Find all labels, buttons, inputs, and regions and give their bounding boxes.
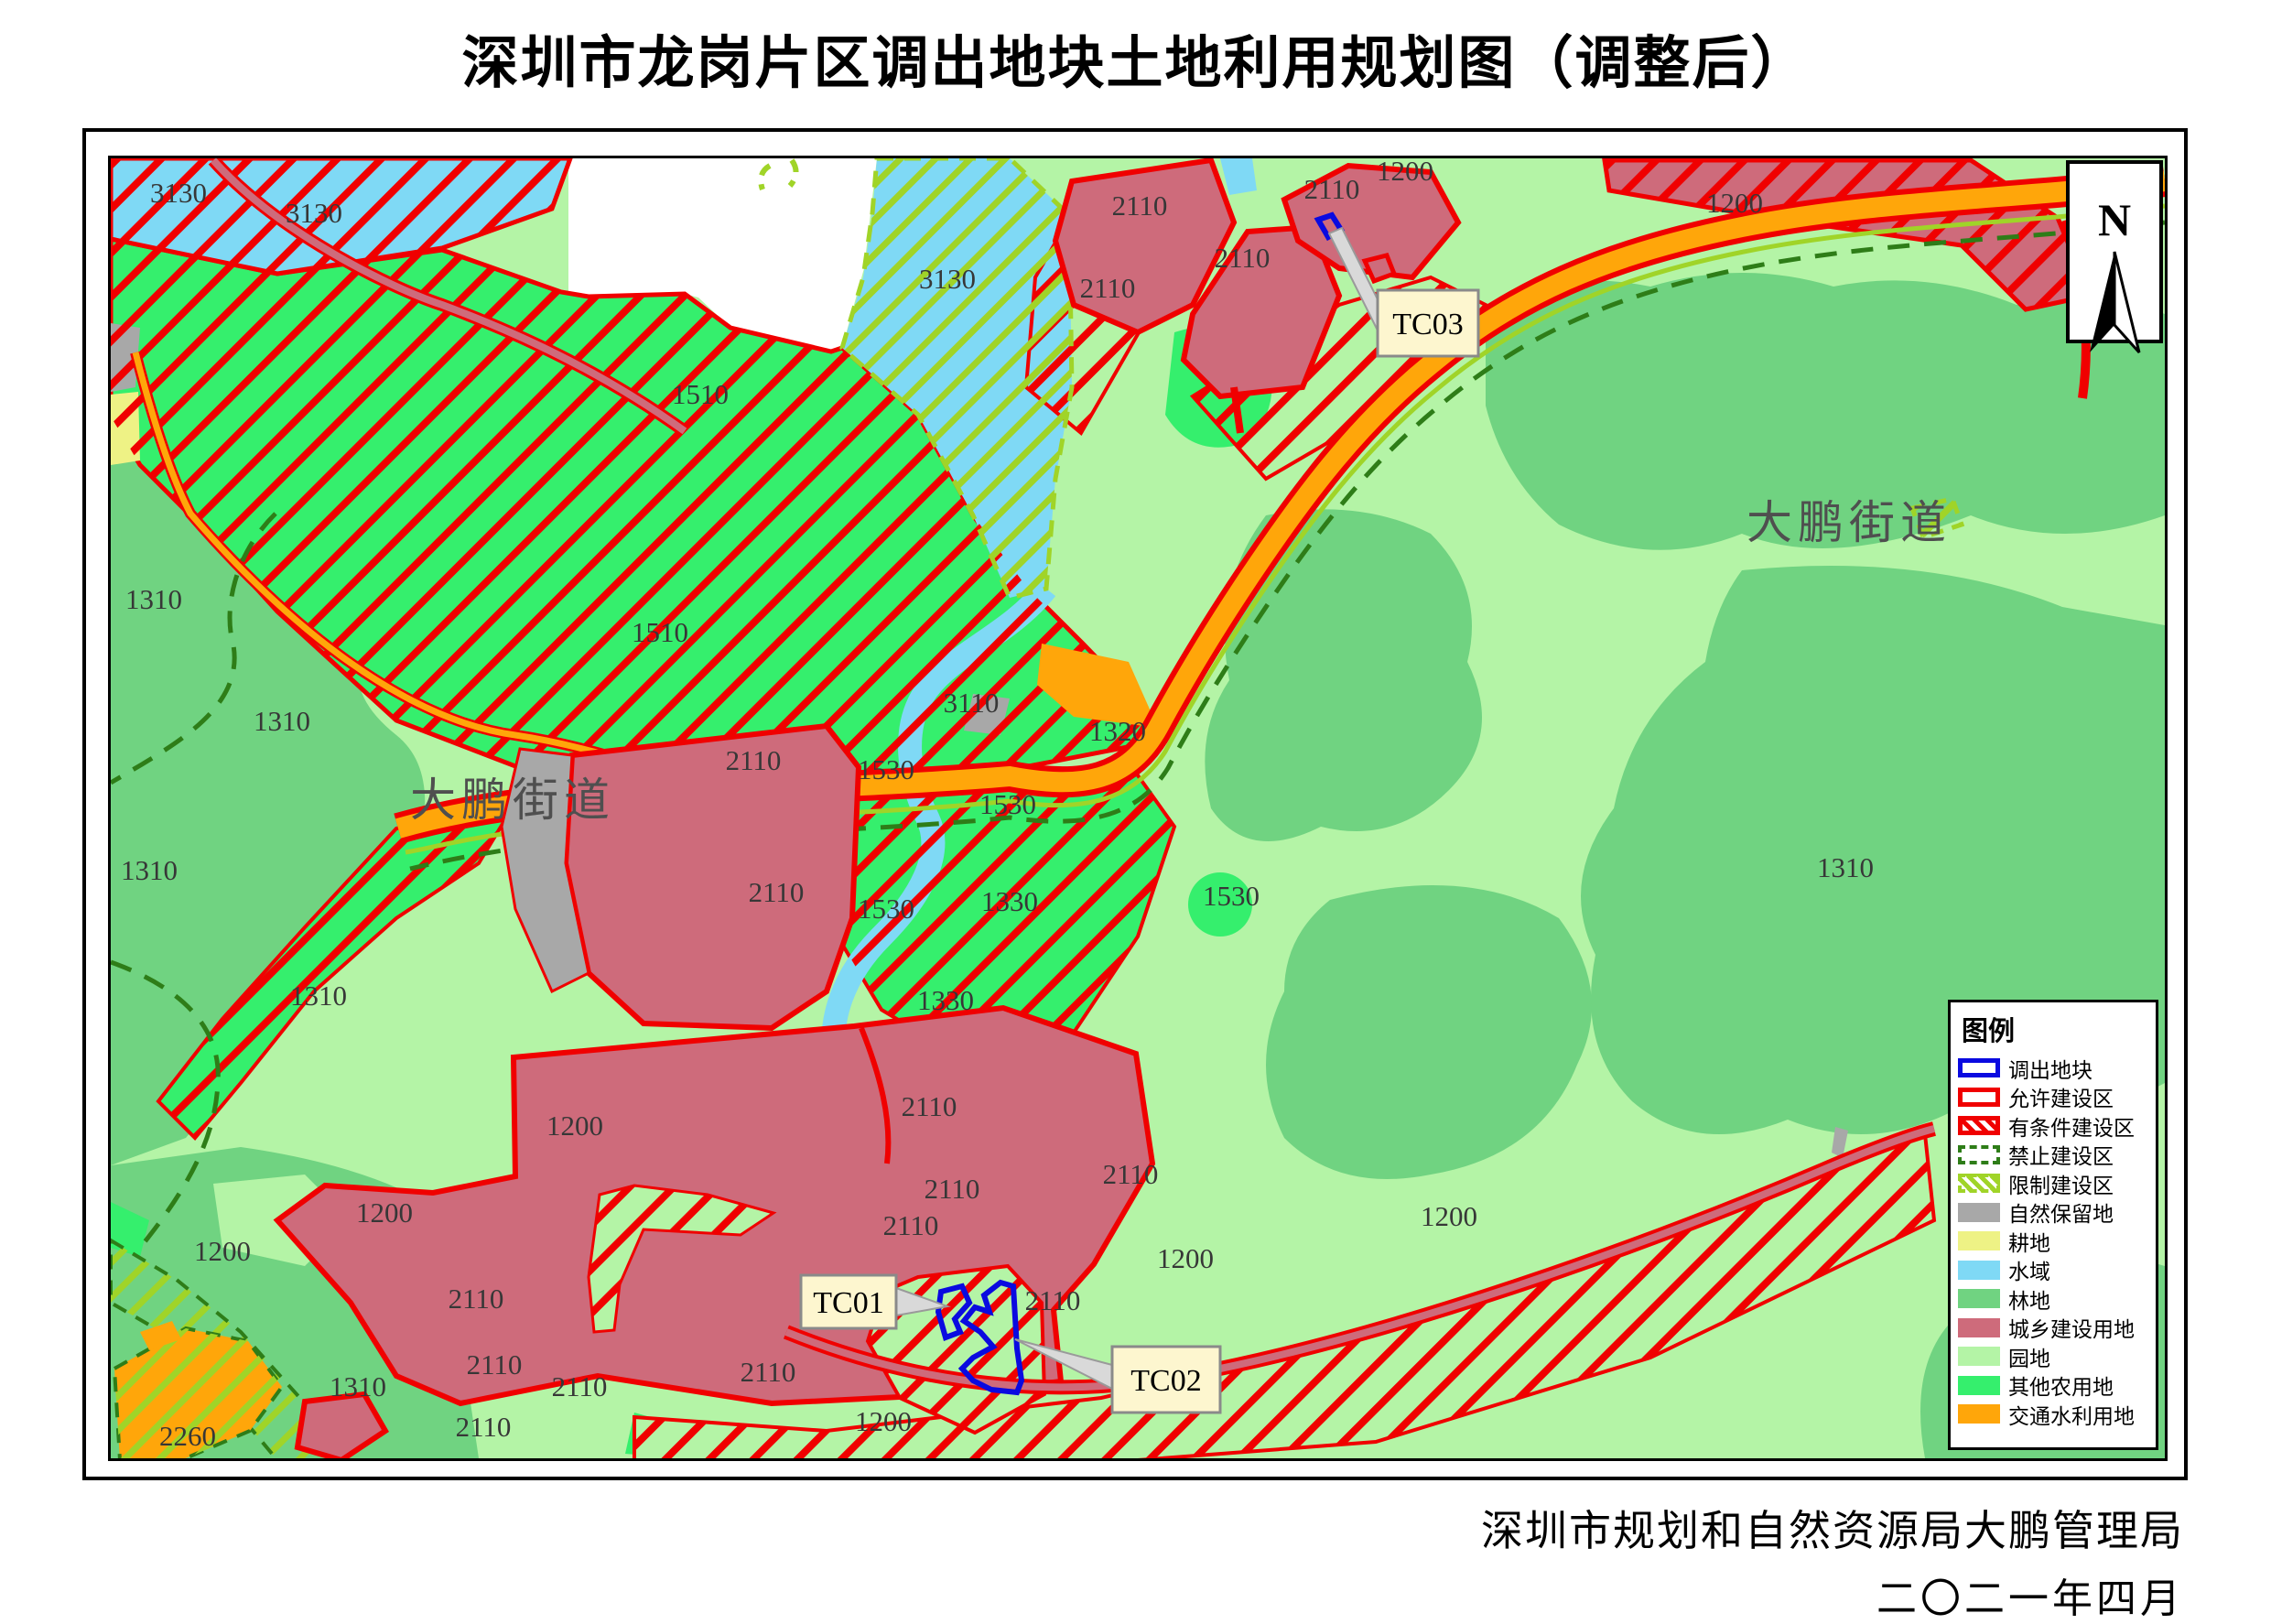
legend-item: 园地 <box>1958 1342 2148 1371</box>
street-label: 大鹏街道 <box>1747 497 1952 548</box>
map-label: 3130 <box>919 263 976 295</box>
map-label: 3110 <box>944 687 1000 719</box>
map-label: 1310 <box>290 980 347 1012</box>
map-label: 1200 <box>1157 1242 1214 1274</box>
map-label: 2110 <box>1103 1158 1159 1190</box>
map-label: 2110 <box>467 1348 523 1380</box>
legend-item: 水域 <box>1958 1256 2148 1285</box>
map-label: 2110 <box>456 1411 512 1443</box>
map-label: 1530 <box>1203 880 1260 912</box>
map-label: 1200 <box>356 1196 413 1229</box>
map-label: 1310 <box>254 705 310 737</box>
legend-swatch <box>1958 1347 2000 1366</box>
map-label: 1310 <box>330 1370 386 1402</box>
legend-item-label: 耕地 <box>2008 1226 2050 1257</box>
legend-item-label: 调出地块 <box>2008 1053 2093 1084</box>
map-label: 3130 <box>286 197 342 229</box>
map-label: 1200 <box>1421 1200 1477 1232</box>
callout-label: TC02 <box>1130 1364 1201 1398</box>
legend-item-label: 禁止建设区 <box>2008 1139 2114 1170</box>
legend-swatch <box>1958 1231 2000 1250</box>
legend-swatch <box>1958 1404 2000 1424</box>
legend-item: 其他农用地 <box>1958 1371 2148 1401</box>
legend-item-label: 水域 <box>2008 1254 2050 1285</box>
map-label: 2110 <box>883 1209 939 1241</box>
legend-item-label: 交通水利用地 <box>2008 1399 2135 1430</box>
map-label: 1510 <box>672 378 729 410</box>
map-label: 1310 <box>1817 851 1874 883</box>
legend-swatch <box>1958 1203 2000 1222</box>
legend-item-label: 林地 <box>2008 1283 2050 1315</box>
map-label: 2110 <box>552 1370 608 1402</box>
map-label: 2110 <box>726 744 782 776</box>
map-label: 1530 <box>858 893 914 925</box>
map-label: 1200 <box>1706 187 1763 219</box>
legend-item-label: 自然保留地 <box>2008 1196 2114 1228</box>
map-label: 1530 <box>858 753 914 785</box>
map-label: 1310 <box>121 854 178 886</box>
north-arrow-box: N <box>2068 162 2161 352</box>
legend-swatch <box>1958 1376 2000 1395</box>
map-label: 2110 <box>449 1283 504 1315</box>
legend-item-label: 允许建设区 <box>2008 1081 2114 1112</box>
legend-item: 自然保留地 <box>1958 1198 2148 1228</box>
map-label: 1200 <box>855 1405 912 1437</box>
map-label: 2110 <box>1112 189 1168 222</box>
footer-date: 二〇二一年四月 <box>1481 1565 2184 1624</box>
legend-swatch <box>1958 1116 2000 1135</box>
page-title: 深圳市龙岗片区调出地块土地利用规划图（调整后） <box>0 16 2271 99</box>
map-label: 1330 <box>981 885 1038 917</box>
map-label: 2110 <box>1215 242 1271 274</box>
street-label: 大鹏街道 <box>410 774 615 826</box>
map-label: 2110 <box>1025 1284 1081 1316</box>
map-label: 2260 <box>159 1420 216 1452</box>
map-label: 1510 <box>632 616 688 648</box>
legend-title: 图例 <box>1962 1010 2148 1048</box>
callout-label: TC03 <box>1392 308 1463 341</box>
callout-label: TC01 <box>813 1286 883 1320</box>
legend-item-label: 有条件建设区 <box>2008 1110 2135 1142</box>
legend-item: 允许建设区 <box>1958 1083 2148 1112</box>
map-label: 2110 <box>925 1173 980 1205</box>
legend-swatch <box>1958 1289 2000 1308</box>
map-label: 1320 <box>1089 715 1146 747</box>
map-svg: 大鹏街道大鹏街道 3130313031301510151021102110211… <box>111 158 2165 1458</box>
map-label: 1310 <box>125 583 182 615</box>
map-label: 2110 <box>1080 272 1136 304</box>
legend-item: 林地 <box>1958 1284 2148 1314</box>
legend-item: 禁止建设区 <box>1958 1141 2148 1170</box>
map-label: 1200 <box>546 1110 603 1142</box>
legend-swatch <box>1958 1088 2000 1107</box>
legend-item: 调出地块 <box>1958 1054 2148 1083</box>
planning-map-page: { "title": "深圳市龙岗片区调出地块土地利用规划图（调整后）", "f… <box>0 0 2271 1599</box>
map-label: 3130 <box>150 177 207 209</box>
legend-item-label: 其他农用地 <box>2008 1370 2114 1401</box>
legend-swatch <box>1958 1174 2000 1193</box>
legend-item: 交通水利用地 <box>1958 1400 2148 1429</box>
legend: 图例 调出地块允许建设区有条件建设区禁止建设区限制建设区自然保留地耕地水域林地城… <box>1948 1000 2158 1450</box>
legend-item: 城乡建设用地 <box>1958 1314 2148 1343</box>
map-label: 1330 <box>917 984 974 1016</box>
map-label: 2110 <box>749 876 805 908</box>
legend-item: 限制建设区 <box>1958 1169 2148 1198</box>
map-label: 2110 <box>1304 173 1360 205</box>
map-label: 1530 <box>979 788 1036 820</box>
map-label: 2110 <box>741 1356 796 1388</box>
legend-item: 耕地 <box>1958 1227 2148 1256</box>
map-label: 2110 <box>902 1090 957 1122</box>
legend-swatch <box>1958 1261 2000 1280</box>
legend-item-label: 限制建设区 <box>2008 1168 2114 1199</box>
map-label: 1200 <box>1377 158 1433 187</box>
north-label: N <box>2098 194 2131 245</box>
map-canvas: 大鹏街道大鹏街道 3130313031301510151021102110211… <box>108 156 2168 1461</box>
map-label: 1200 <box>194 1235 251 1267</box>
legend-item: 有条件建设区 <box>1958 1111 2148 1141</box>
footer-agency: 深圳市规划和自然资源局大鹏管理局 <box>1481 1498 2184 1558</box>
legend-item-label: 园地 <box>2008 1341 2050 1372</box>
legend-item-label: 城乡建设用地 <box>2008 1312 2135 1343</box>
legend-swatch <box>1958 1145 2000 1164</box>
legend-swatch <box>1958 1058 2000 1077</box>
footer: 深圳市规划和自然资源局大鹏管理局 二〇二一年四月 <box>1481 1498 2184 1624</box>
legend-swatch <box>1958 1318 2000 1337</box>
